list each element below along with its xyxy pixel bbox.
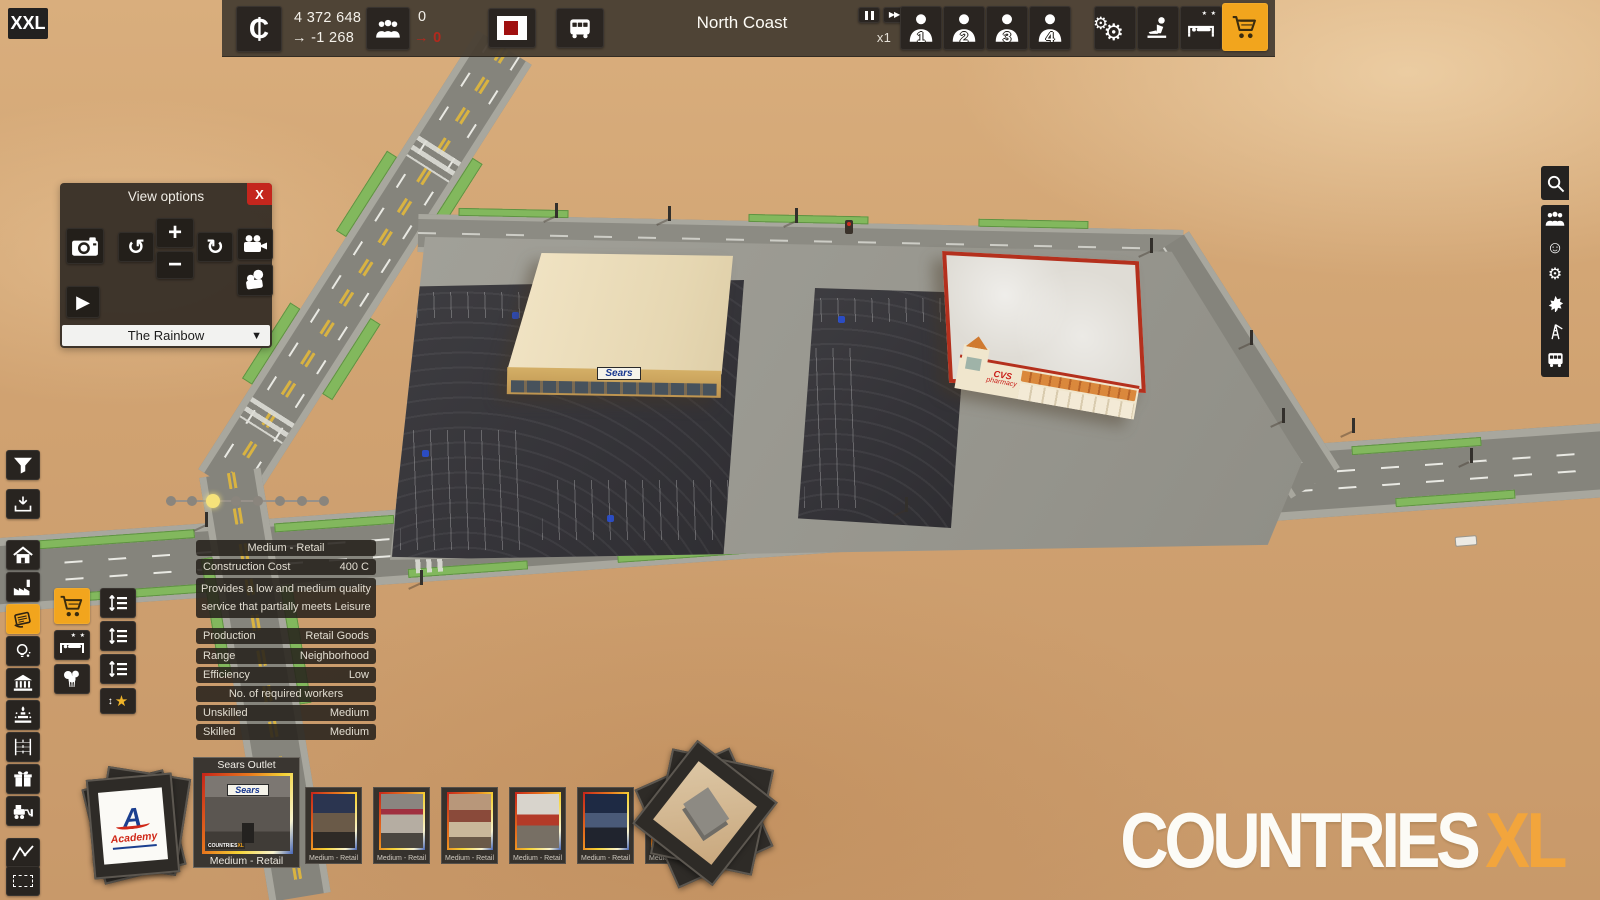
storefront-door [242,823,254,843]
xxl-logo[interactable]: XXL [8,8,48,39]
transport-info-button[interactable] [1541,345,1569,373]
street-lamp [1352,418,1355,433]
thumb-label: Medium - Retail [306,855,361,862]
industry-menu-button[interactable]: ⚙ ⚙ [1094,6,1136,50]
gift-content-button[interactable] [6,764,40,794]
rotate-right-button[interactable]: ↻ [197,232,233,262]
countries-xl-watermark: COUNTRIES XL [1120,795,1564,886]
pause-icon [865,11,874,20]
academy-brand-card[interactable]: A Academy [86,772,180,879]
top-hud-bar: ₵ 4 372 648 → -1 268 0 → 0 [222,0,1275,57]
time-slider[interactable] [166,500,326,502]
decoration-menu-button[interactable] [6,700,40,730]
tooltip-title: Medium - Retail [196,540,376,556]
street-lamp [1282,408,1285,423]
lightbulb-icon [13,641,33,661]
tooltip-cost-row: Construction Cost 400 C [196,559,376,575]
zoom-in-button[interactable]: + [156,218,194,248]
slider-dot[interactable] [231,496,241,506]
plus-icon: + [168,221,182,245]
handicap-mark [607,515,614,522]
movie-mode-button[interactable] [237,228,273,260]
slider-dot-active[interactable] [206,494,220,508]
citizens-group-icon [1544,211,1566,227]
sort-list-button-1[interactable] [100,588,136,618]
tooltip-description: Provides a low and medium quality servic… [196,578,376,618]
search-button[interactable] [1541,166,1569,200]
thumb-label: Medium - Retail [510,855,565,862]
curve-tool-icon [11,844,35,862]
population-delta-value: 0 [433,30,441,46]
zoom-out-button[interactable]: − [156,251,194,279]
slider-dot[interactable] [297,496,307,506]
fast-forward-icon: ▶▶ [889,11,899,19]
office-menu-button[interactable] [1137,6,1179,50]
tooltip-range-row: Range Neighborhood [196,648,376,664]
tooltip-skilled-row: Skilled Medium [196,724,376,740]
delivery-truck [1455,535,1478,547]
gift-icon [13,770,33,788]
thumb-photo [449,794,491,848]
play-button[interactable]: ▶ [66,286,100,318]
sears-building[interactable]: Sears [505,250,733,398]
academy-swoosh [116,819,151,830]
search-icon [1546,174,1565,193]
rotate-left-button[interactable]: ↺ [118,232,154,262]
star-icon: ★ [115,692,128,710]
thumb-frame [583,792,629,850]
street-lamp [1150,238,1153,253]
handicap-mark [422,450,429,457]
utilities-menu-button[interactable] [6,636,40,666]
citizens-group-icon [374,19,402,39]
red-flag-icon [497,16,527,40]
map-name: The Rainbow [128,328,205,343]
milestone-button-2[interactable]: 2 [943,6,985,50]
row-value: Low [349,669,369,681]
population-count: 0 [418,9,426,25]
chevron-down-icon: ▼ [251,330,262,342]
civic-menu-button[interactable] [6,668,40,698]
street-lamp [1470,448,1473,463]
filter-icon [12,456,34,474]
thumb-photo [585,794,627,848]
tooltip-unskilled-row: Unskilled Medium [196,705,376,721]
rotate-cw-icon: ↻ [206,237,224,258]
thumb-label: Medium - Retail [578,855,633,862]
street-lamp [555,203,558,218]
pause-button[interactable] [858,7,880,23]
bulldozer-button[interactable] [6,796,40,826]
parking-lines [542,480,732,540]
watermark-countries: COUNTRIES [1120,795,1476,886]
download-icon [13,495,33,513]
oil-derrick-icon [1547,323,1564,340]
hotel-menu-button[interactable]: ★ ★ [1180,6,1222,50]
retail-menu-button[interactable] [1222,3,1268,51]
thumb-frame [311,792,357,850]
selected-building-label: Medium - Retail [194,855,299,867]
red-flag-field [502,21,518,35]
arrow-right-red-icon: → [414,30,429,46]
milestone-number: 3 [986,29,1028,46]
milestone-button-4[interactable]: 4 [1029,6,1071,50]
close-button[interactable]: X [247,183,272,205]
street-lamp [905,497,908,512]
download-button[interactable] [6,489,40,519]
factory-icon [12,577,34,597]
money-delta-value: -1 268 [311,30,354,46]
cvs-tower-window [965,357,982,371]
cost-value: 400 C [340,561,369,573]
parking-lines [400,430,520,550]
row-label: Efficiency [203,669,250,681]
milestone-number: 1 [900,29,942,46]
grass-verge [322,318,380,400]
watermark-xl: XL [1485,795,1564,886]
street-lamp [668,206,671,221]
mini-watermark-text: COUNTRIES [208,843,237,849]
row-value: Retail Goods [305,630,369,642]
fountain-icon [12,705,34,725]
slider-dot[interactable] [187,496,197,506]
building-thumb-5[interactable]: Medium - Retail [577,787,634,864]
shopping-cart-icon [1231,14,1259,40]
city-info-rail: ☺ ⚙ [1541,205,1569,377]
handicap-mark [838,316,845,323]
game-window: Sears CVS pharmacy [0,0,1600,900]
building-thumb-2[interactable]: Medium - Retail [373,787,430,864]
marquee-icon [13,875,33,887]
row-value: Medium [330,726,369,738]
transport-button[interactable] [556,8,604,48]
selected-building-card[interactable]: Sears Outlet Sears COUNTRIESXL Medium - … [193,757,300,868]
row-value: Neighborhood [300,650,369,662]
hotel-stars-icon: ★ ★ [1202,10,1217,17]
balloons-icon [61,669,83,689]
cost-label: Construction Cost [203,561,290,573]
commerce-rail-button-selected[interactable] [6,604,40,634]
parking-lines [804,348,864,508]
terrain-line-tool-button[interactable] [6,838,40,868]
tooltip-production-row: Production Retail Goods [196,628,376,644]
movie-camera-icon [242,234,268,254]
traffic-signal [845,220,853,234]
panel-title: View options [60,189,272,204]
updown-arrow-icon: ↕ [108,696,113,707]
population-icon[interactable] [366,7,410,50]
environment-info-button[interactable] [1541,289,1569,317]
roads-menu-button[interactable] [6,732,40,762]
bus-icon [567,17,593,39]
gear-icon: ⚙ [1548,267,1562,283]
rotate-ccw-icon: ↺ [127,237,145,258]
resources-info-button[interactable] [1541,317,1569,345]
shopping-cart-icon [59,594,85,618]
sort-list-button-2[interactable] [100,621,136,651]
milestone-number: 4 [1029,29,1071,46]
slider-dot[interactable] [275,496,285,506]
leaf-icon [1547,295,1564,312]
smiley-icon: ☺ [1546,239,1563,256]
camcorder-icon [242,268,268,292]
milestone-number: 2 [943,29,985,46]
selected-building-title: Sears Outlet [194,758,299,771]
hotel-stars-icon: ★ ★ [71,632,86,639]
tooltip-efficiency-row: Efficiency Low [196,667,376,683]
selected-building-photo: Sears COUNTRIESXL [205,776,290,851]
academy-logo: A Academy [98,787,168,864]
milestone-button-3[interactable]: 3 [986,6,1028,50]
building-thumb-1[interactable]: Medium - Retail [305,787,362,864]
citizens-info-button[interactable] [1541,205,1569,233]
street-lamp [795,208,798,223]
arrow-right-icon: → [292,30,307,46]
thumb-photo [313,794,355,848]
parking-lines [804,298,954,322]
street-lamp [1250,330,1253,345]
thumb-label: Medium - Retail [442,855,497,862]
flag-status-button[interactable] [488,8,536,48]
camera-path-button[interactable] [237,264,273,296]
favorites-sort-button[interactable]: ↕ ★ [100,688,136,714]
bank-building-icon [12,673,34,693]
street-lamp [205,512,208,527]
screenshot-button[interactable] [66,228,104,264]
cvs-sign: CVS pharmacy [986,369,1019,390]
minus-icon: − [168,253,182,277]
thumb-label: Medium - Retail [374,855,429,862]
money-delta: → -1 268 [292,30,354,46]
thumb-photo [381,794,423,848]
sears-storefront-windows [511,380,717,396]
slider-dot[interactable] [253,496,263,506]
thumb-frame [515,792,561,850]
population-delta: → 0 [414,30,442,46]
slider-dot[interactable] [166,496,176,506]
office-worker-icon [1144,16,1172,40]
hotel-bed-icon [1187,17,1215,39]
slider-dot[interactable] [319,496,329,506]
retail-category-button-selected[interactable] [54,588,90,624]
mini-watermark-xl: XL [237,843,243,849]
marquee-select-button[interactable] [6,866,40,896]
thumb-frame [447,792,493,850]
row-label: Skilled [203,726,235,738]
gear-icon: ⚙ [1103,21,1124,44]
leisure-category-button[interactable] [54,664,90,694]
sort-list-icon [106,627,130,645]
road-icon [12,737,34,757]
currency-symbol: ₵ [249,15,269,43]
description-line: service that partially meets Leisure [196,598,376,616]
tooltip-workers-header: No. of required workers [196,686,376,702]
money-icon[interactable]: ₵ [236,6,282,52]
bulldozer-icon [11,801,35,821]
aerial-building-blob [683,787,729,835]
description-line: Provides a low and medium quality [196,580,376,598]
sort-list-icon [106,594,130,612]
close-icon: X [255,187,264,202]
cvs-pharmacy-building[interactable]: CVS pharmacy [938,250,1150,408]
play-icon: ▶ [76,293,90,311]
residential-menu-button[interactable] [6,540,40,570]
countriesxl-mini-watermark: COUNTRIESXL [207,843,245,849]
row-label: Production [203,630,256,642]
thumb-frame [379,792,425,850]
sears-mini-sign: Sears [227,784,269,796]
thumb-photo [517,794,559,848]
satisfaction-info-button[interactable]: ☺ [1541,233,1569,261]
row-label: Range [203,650,235,662]
city-name: North Coast [642,13,842,33]
selected-building-frame: Sears COUNTRIESXL [202,773,293,854]
bus-icon [1546,351,1565,368]
economy-info-button[interactable]: ⚙ [1541,261,1569,289]
view-options-panel: View options X ↺ + − ↻ [60,183,272,348]
house-icon [12,545,34,565]
filter-button[interactable] [6,450,40,480]
retail-card-icon [12,609,34,629]
building-thumb-3[interactable]: Medium - Retail [441,787,498,864]
photo-camera-icon [71,235,99,257]
industry-rail-button[interactable] [6,572,40,602]
sears-sign: Sears [597,367,641,380]
row-label: Unskilled [203,707,248,719]
sort-list-icon [106,660,130,678]
street-lamp [420,570,423,585]
building-thumb-4[interactable]: Medium - Retail [509,787,566,864]
row-value: Medium [330,707,369,719]
hotel-category-button[interactable]: ★ ★ [54,630,90,660]
milestone-button-1[interactable]: 1 [900,6,942,50]
map-selector-dropdown[interactable]: The Rainbow ▼ [62,325,270,346]
sort-list-button-3[interactable] [100,654,136,684]
money-balance: 4 372 648 [294,10,361,26]
